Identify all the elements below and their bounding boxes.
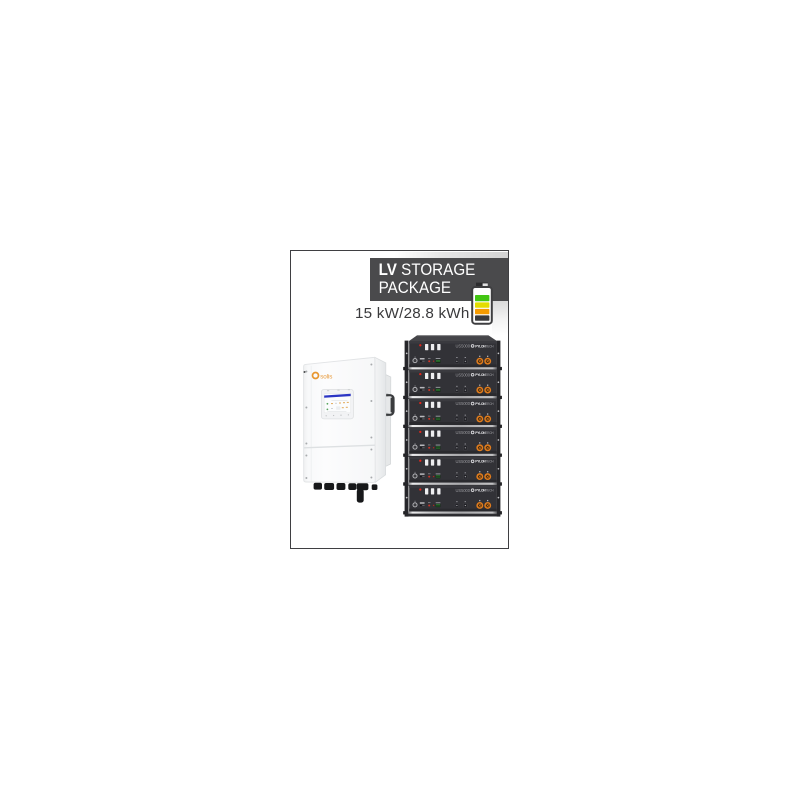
svg-text:PYLONTECH: PYLONTECH (475, 344, 494, 348)
svg-text:solis: solis (320, 373, 332, 380)
svg-text:PYLONTECH: PYLONTECH (475, 431, 494, 435)
svg-text:US5000: US5000 (456, 344, 471, 349)
svg-text:US5000: US5000 (456, 488, 471, 493)
svg-text:US5000: US5000 (456, 372, 471, 377)
svg-text:PYLONTECH: PYLONTECH (475, 489, 494, 493)
svg-text:US5000: US5000 (456, 430, 471, 435)
svg-text:US5000: US5000 (456, 459, 471, 464)
svg-text:PYLONTECH: PYLONTECH (475, 402, 494, 406)
svg-text:PYLONTECH: PYLONTECH (475, 460, 494, 464)
svg-text:US5000: US5000 (456, 401, 471, 406)
svg-text:PYLONTECH: PYLONTECH (475, 373, 494, 377)
